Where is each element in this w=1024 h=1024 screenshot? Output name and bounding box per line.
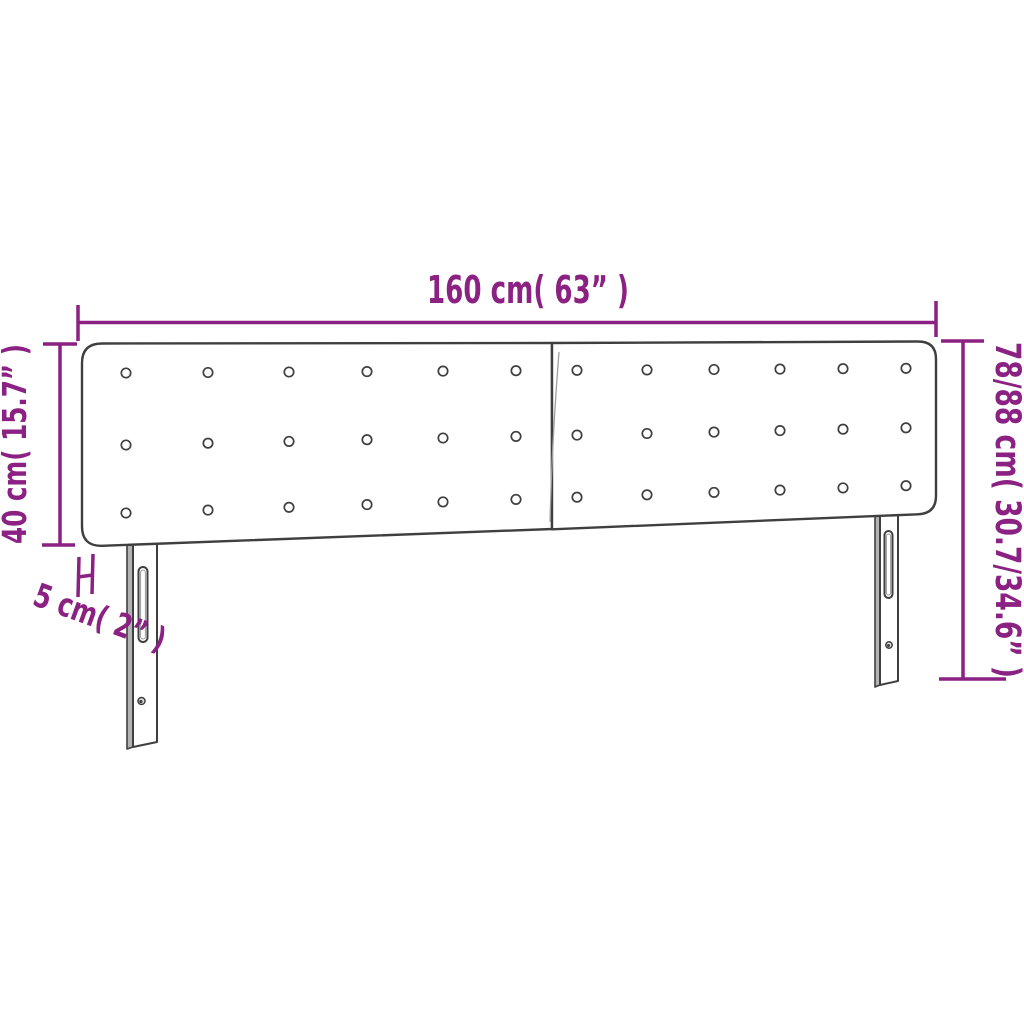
tuft-button	[642, 490, 651, 499]
tuft-button	[438, 497, 447, 506]
tuft-button	[284, 367, 293, 376]
headboard-dimension-diagram: 160 cm( 63” ) 40 cm( 15.7” ) 78/88 cm( 3…	[0, 0, 1024, 1024]
tuft-button	[709, 488, 718, 497]
tuft-button	[838, 483, 847, 492]
tuft-button	[121, 368, 130, 377]
tuft-button	[203, 368, 212, 377]
headboard-left-panel	[82, 343, 552, 546]
tuft-button	[362, 435, 371, 444]
right-leg-slot	[885, 531, 893, 598]
tuft-button	[775, 426, 784, 435]
tuft-button	[572, 493, 581, 502]
tuft-button	[121, 440, 130, 449]
tuft-button	[438, 366, 447, 375]
total-height-dimension-label: 78/88 cm( 30.7/34.6” )	[987, 342, 1024, 678]
tuft-button	[901, 423, 910, 432]
tuft-button	[121, 508, 130, 517]
panel-height-dimension-label: 40 cm( 15.7” )	[0, 344, 34, 544]
headboard-right-panel	[552, 342, 936, 530]
tuft-button	[203, 439, 212, 448]
tuft-button	[511, 432, 520, 441]
tuft-button	[642, 429, 651, 438]
panel-height-dimension	[42, 344, 77, 545]
tuft-button	[838, 364, 847, 373]
thickness-dimension-line	[78, 575, 93, 577]
tuft-button	[838, 425, 847, 434]
tuft-button	[203, 505, 212, 514]
width-dimension-label: 160 cm( 63” )	[427, 268, 629, 312]
tuft-button	[901, 364, 910, 373]
tuft-button	[709, 427, 718, 436]
tuft-button	[572, 366, 581, 375]
tuft-button	[709, 365, 718, 374]
right-leg-screw-dot	[887, 644, 890, 647]
tuft-button	[775, 485, 784, 494]
tuft-button	[284, 503, 293, 512]
tuft-button	[511, 495, 520, 504]
tuft-button	[284, 437, 293, 446]
right-leg	[875, 511, 898, 687]
tuft-button	[362, 500, 371, 509]
tuft-button	[775, 364, 784, 373]
left-leg-screw-dot	[139, 700, 142, 703]
tuft-button	[511, 366, 520, 375]
tuft-button	[901, 481, 910, 490]
tuft-button	[362, 367, 371, 376]
product-diagram-canvas: 160 cm( 63” ) 40 cm( 15.7” ) 78/88 cm( 3…	[0, 0, 1024, 1024]
tuft-button	[572, 430, 581, 439]
tuft-button	[642, 365, 651, 374]
tuft-button	[438, 433, 447, 442]
